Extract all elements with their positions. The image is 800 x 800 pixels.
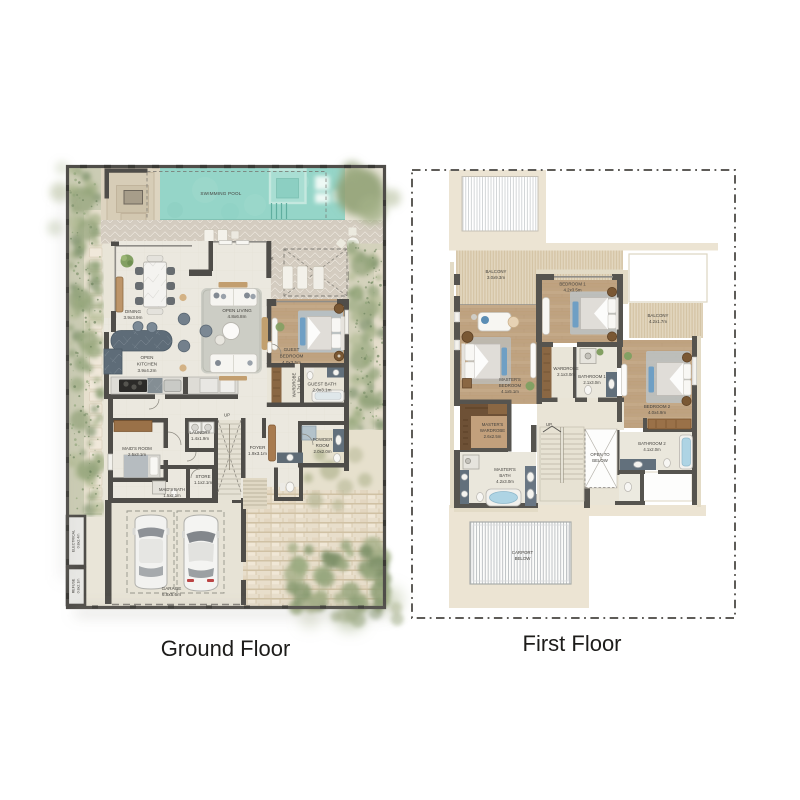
svg-text:BELOW: BELOW (592, 458, 608, 463)
svg-text:3.0x9.3m: 3.0x9.3m (487, 275, 505, 280)
svg-text:6.8x5.6m: 6.8x5.6m (162, 592, 181, 597)
svg-text:0.8x2.4m: 0.8x2.4m (77, 534, 81, 549)
svg-text:GUEST BATH: GUEST BATH (308, 382, 337, 387)
svg-text:GARAGE: GARAGE (162, 586, 182, 591)
svg-text:MASTER'S: MASTER'S (499, 377, 521, 382)
svg-text:MAID'S BATH: MAID'S BATH (159, 487, 185, 492)
svg-text:SWIMMING POOL: SWIMMING POOL (200, 191, 241, 196)
svg-text:First Floor: First Floor (523, 631, 622, 656)
svg-text:4.2x3.0m: 4.2x3.0m (496, 479, 514, 484)
svg-text:BEDROOM 1: BEDROOM 1 (559, 282, 586, 287)
svg-text:BATHROOM 1: BATHROOM 1 (578, 374, 606, 379)
svg-text:BEDROOM 2: BEDROOM 2 (644, 404, 671, 409)
svg-text:Ground Floor: Ground Floor (161, 636, 291, 661)
svg-text:2.5x3.1m: 2.5x3.1m (128, 452, 146, 457)
svg-text:2.1x3.0m: 2.1x3.0m (557, 372, 575, 377)
svg-text:MASTER'S: MASTER'S (494, 467, 516, 472)
svg-text:BEDROOM: BEDROOM (499, 383, 522, 388)
svg-text:STORE: STORE (195, 474, 210, 479)
svg-text:WARDROBE: WARDROBE (480, 428, 505, 433)
svg-text:OPEN TO: OPEN TO (590, 452, 610, 457)
svg-text:4.8x6.8m: 4.8x6.8m (228, 314, 247, 319)
svg-text:1.5x2.1m: 1.5x2.1m (163, 493, 181, 498)
svg-text:3.9x4.2m: 3.9x4.2m (138, 368, 157, 373)
svg-text:1.7x1.9m: 1.7x1.9m (297, 376, 302, 394)
svg-text:4.0x4.9m: 4.0x4.9m (648, 410, 666, 415)
svg-text:ROOM: ROOM (316, 443, 330, 448)
svg-text:2.1x3.0m: 2.1x3.0m (583, 380, 601, 385)
svg-text:OPEN: OPEN (140, 355, 153, 360)
svg-text:POWDER: POWDER (313, 437, 333, 442)
svg-text:OPEN LIVING: OPEN LIVING (222, 308, 252, 313)
svg-text:4.2x1.7m: 4.2x1.7m (649, 319, 667, 324)
svg-text:3.9x3.9m: 3.9x3.9m (124, 315, 143, 320)
svg-text:DINING: DINING (125, 309, 142, 314)
svg-text:BALCONY: BALCONY (648, 313, 669, 318)
svg-text:BALCONY: BALCONY (486, 269, 507, 274)
svg-text:BATH: BATH (499, 473, 510, 478)
svg-text:KITCHEN: KITCHEN (137, 362, 157, 367)
svg-text:FOYER: FOYER (250, 445, 267, 450)
svg-text:1.1x2.1m: 1.1x2.1m (194, 480, 212, 485)
svg-text:4.1x5.1m: 4.1x5.1m (501, 389, 519, 394)
svg-text:MASTER'S: MASTER'S (482, 422, 504, 427)
svg-text:4.0x3.5m: 4.0x3.5m (282, 360, 301, 365)
svg-text:2.0x2.0m: 2.0x2.0m (313, 449, 331, 454)
svg-text:MAID'S ROOM: MAID'S ROOM (122, 446, 152, 451)
svg-text:UP: UP (546, 422, 552, 427)
svg-text:BATHROOM 2: BATHROOM 2 (638, 441, 666, 446)
svg-text:UP: UP (224, 413, 230, 418)
svg-text:1.9x3.1m: 1.9x3.1m (248, 451, 267, 456)
svg-text:BEDROOM: BEDROOM (280, 354, 304, 359)
svg-text:GUEST: GUEST (284, 347, 300, 352)
svg-text:1.4x1.9m: 1.4x1.9m (191, 436, 209, 441)
svg-text:2.0x3.1m: 2.0x3.1m (313, 388, 332, 393)
svg-text:LAUNDRY: LAUNDRY (190, 430, 211, 435)
svg-text:ELECTRICAL: ELECTRICAL (72, 530, 76, 552)
svg-text:WARDROBE: WARDROBE (553, 366, 578, 371)
svg-text:4.1x2.0m: 4.1x2.0m (643, 447, 661, 452)
svg-text:REFUSE: REFUSE (72, 578, 76, 593)
svg-text:CARPORT: CARPORT (512, 550, 534, 555)
svg-text:2.6x2.5m: 2.6x2.5m (484, 434, 502, 439)
svg-text:0.8x2.1m: 0.8x2.1m (77, 579, 81, 594)
svg-text:BELOW: BELOW (515, 556, 532, 561)
